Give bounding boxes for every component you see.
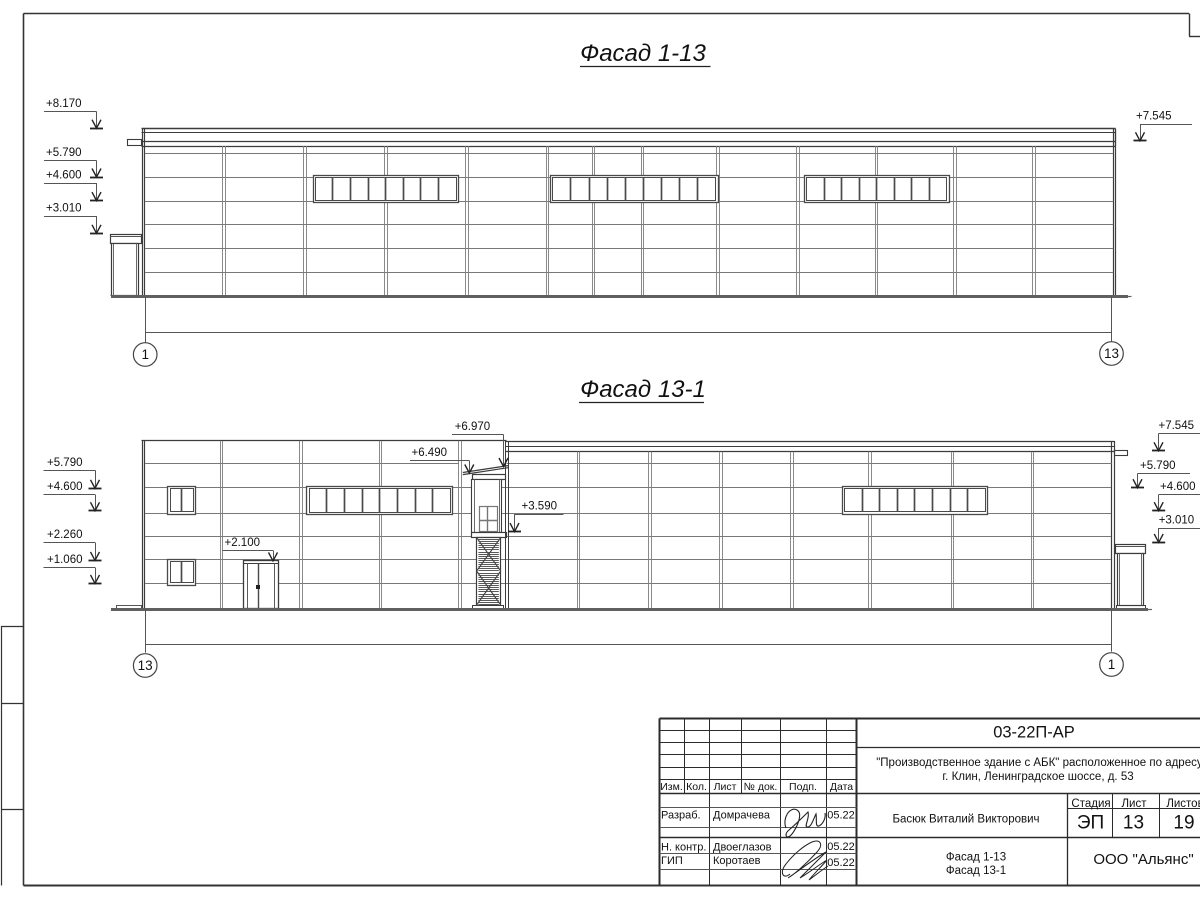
svg-text:Дата: Дата [830, 781, 853, 793]
svg-text:Лист: Лист [714, 781, 737, 793]
svg-text:Фасад 1-13: Фасад 1-13 [580, 40, 706, 67]
svg-text:1: 1 [141, 347, 149, 362]
svg-text:+3.590: +3.590 [522, 501, 558, 513]
svg-text:+3.010: +3.010 [1159, 515, 1195, 527]
svg-text:Стадия: Стадия [1071, 798, 1110, 810]
svg-text:Коротаев: Коротаев [713, 855, 761, 867]
svg-text:+4.600: +4.600 [47, 481, 83, 493]
svg-text:+3.010: +3.010 [46, 203, 82, 215]
svg-text:г. Клин, Ленинградское шоссе,: г. Клин, Ленинградское шоссе, д. 53 [942, 771, 1133, 783]
svg-text:Фасад 13-1: Фасад 13-1 [580, 376, 706, 403]
svg-text:03-22П-АР: 03-22П-АР [993, 724, 1075, 742]
svg-text:Фасад 13-1: Фасад 13-1 [946, 865, 1006, 877]
svg-text:19: 19 [1173, 813, 1194, 834]
svg-text:+4.600: +4.600 [1160, 481, 1196, 493]
svg-text:05.22: 05.22 [827, 841, 855, 853]
svg-text:+6.490: +6.490 [412, 447, 448, 459]
svg-text:"Производственное здание с АБК: "Производственное здание с АБК" располож… [876, 757, 1200, 769]
svg-text:13: 13 [1123, 813, 1144, 834]
svg-text:Кол.: Кол. [686, 781, 707, 793]
svg-text:+7.545: +7.545 [1136, 111, 1172, 123]
svg-text:05.22: 05.22 [827, 857, 855, 869]
svg-text:+2.260: +2.260 [47, 529, 83, 541]
svg-text:13: 13 [138, 658, 153, 673]
svg-text:05.22: 05.22 [827, 810, 855, 822]
svg-text:+5.790: +5.790 [47, 457, 83, 469]
svg-text:13: 13 [1104, 346, 1119, 361]
svg-text:+1.060: +1.060 [47, 554, 83, 566]
svg-text:№ док.: № док. [744, 781, 778, 793]
svg-text:Н. контр.: Н. контр. [661, 842, 706, 854]
svg-text:Изм.: Изм. [660, 781, 683, 793]
svg-text:ООО "Альянс": ООО "Альянс" [1093, 851, 1193, 868]
svg-text:Басюк Виталий Викторович: Басюк Виталий Викторович [892, 814, 1039, 826]
svg-text:Разраб.: Разраб. [661, 810, 701, 822]
svg-text:Двоеглазов: Двоеглазов [713, 842, 772, 854]
svg-text:Подп.: Подп. [789, 781, 817, 793]
svg-text:Домрачева: Домрачева [713, 810, 771, 822]
svg-text:+7.545: +7.545 [1159, 420, 1195, 432]
svg-text:+4.600: +4.600 [46, 170, 82, 182]
svg-text:+5.790: +5.790 [1140, 460, 1176, 472]
svg-text:+8.170: +8.170 [46, 98, 82, 110]
svg-text:Фасад 1-13: Фасад 1-13 [946, 852, 1006, 864]
svg-text:ГИП: ГИП [661, 855, 683, 867]
svg-text:Лист: Лист [1122, 798, 1148, 810]
svg-text:1: 1 [1108, 657, 1116, 672]
svg-text:Листов: Листов [1166, 798, 1200, 810]
svg-text:+2.100: +2.100 [225, 537, 261, 549]
svg-text:ЭП: ЭП [1077, 813, 1104, 834]
svg-text:+5.790: +5.790 [46, 147, 82, 159]
svg-text:+6.970: +6.970 [455, 421, 491, 433]
